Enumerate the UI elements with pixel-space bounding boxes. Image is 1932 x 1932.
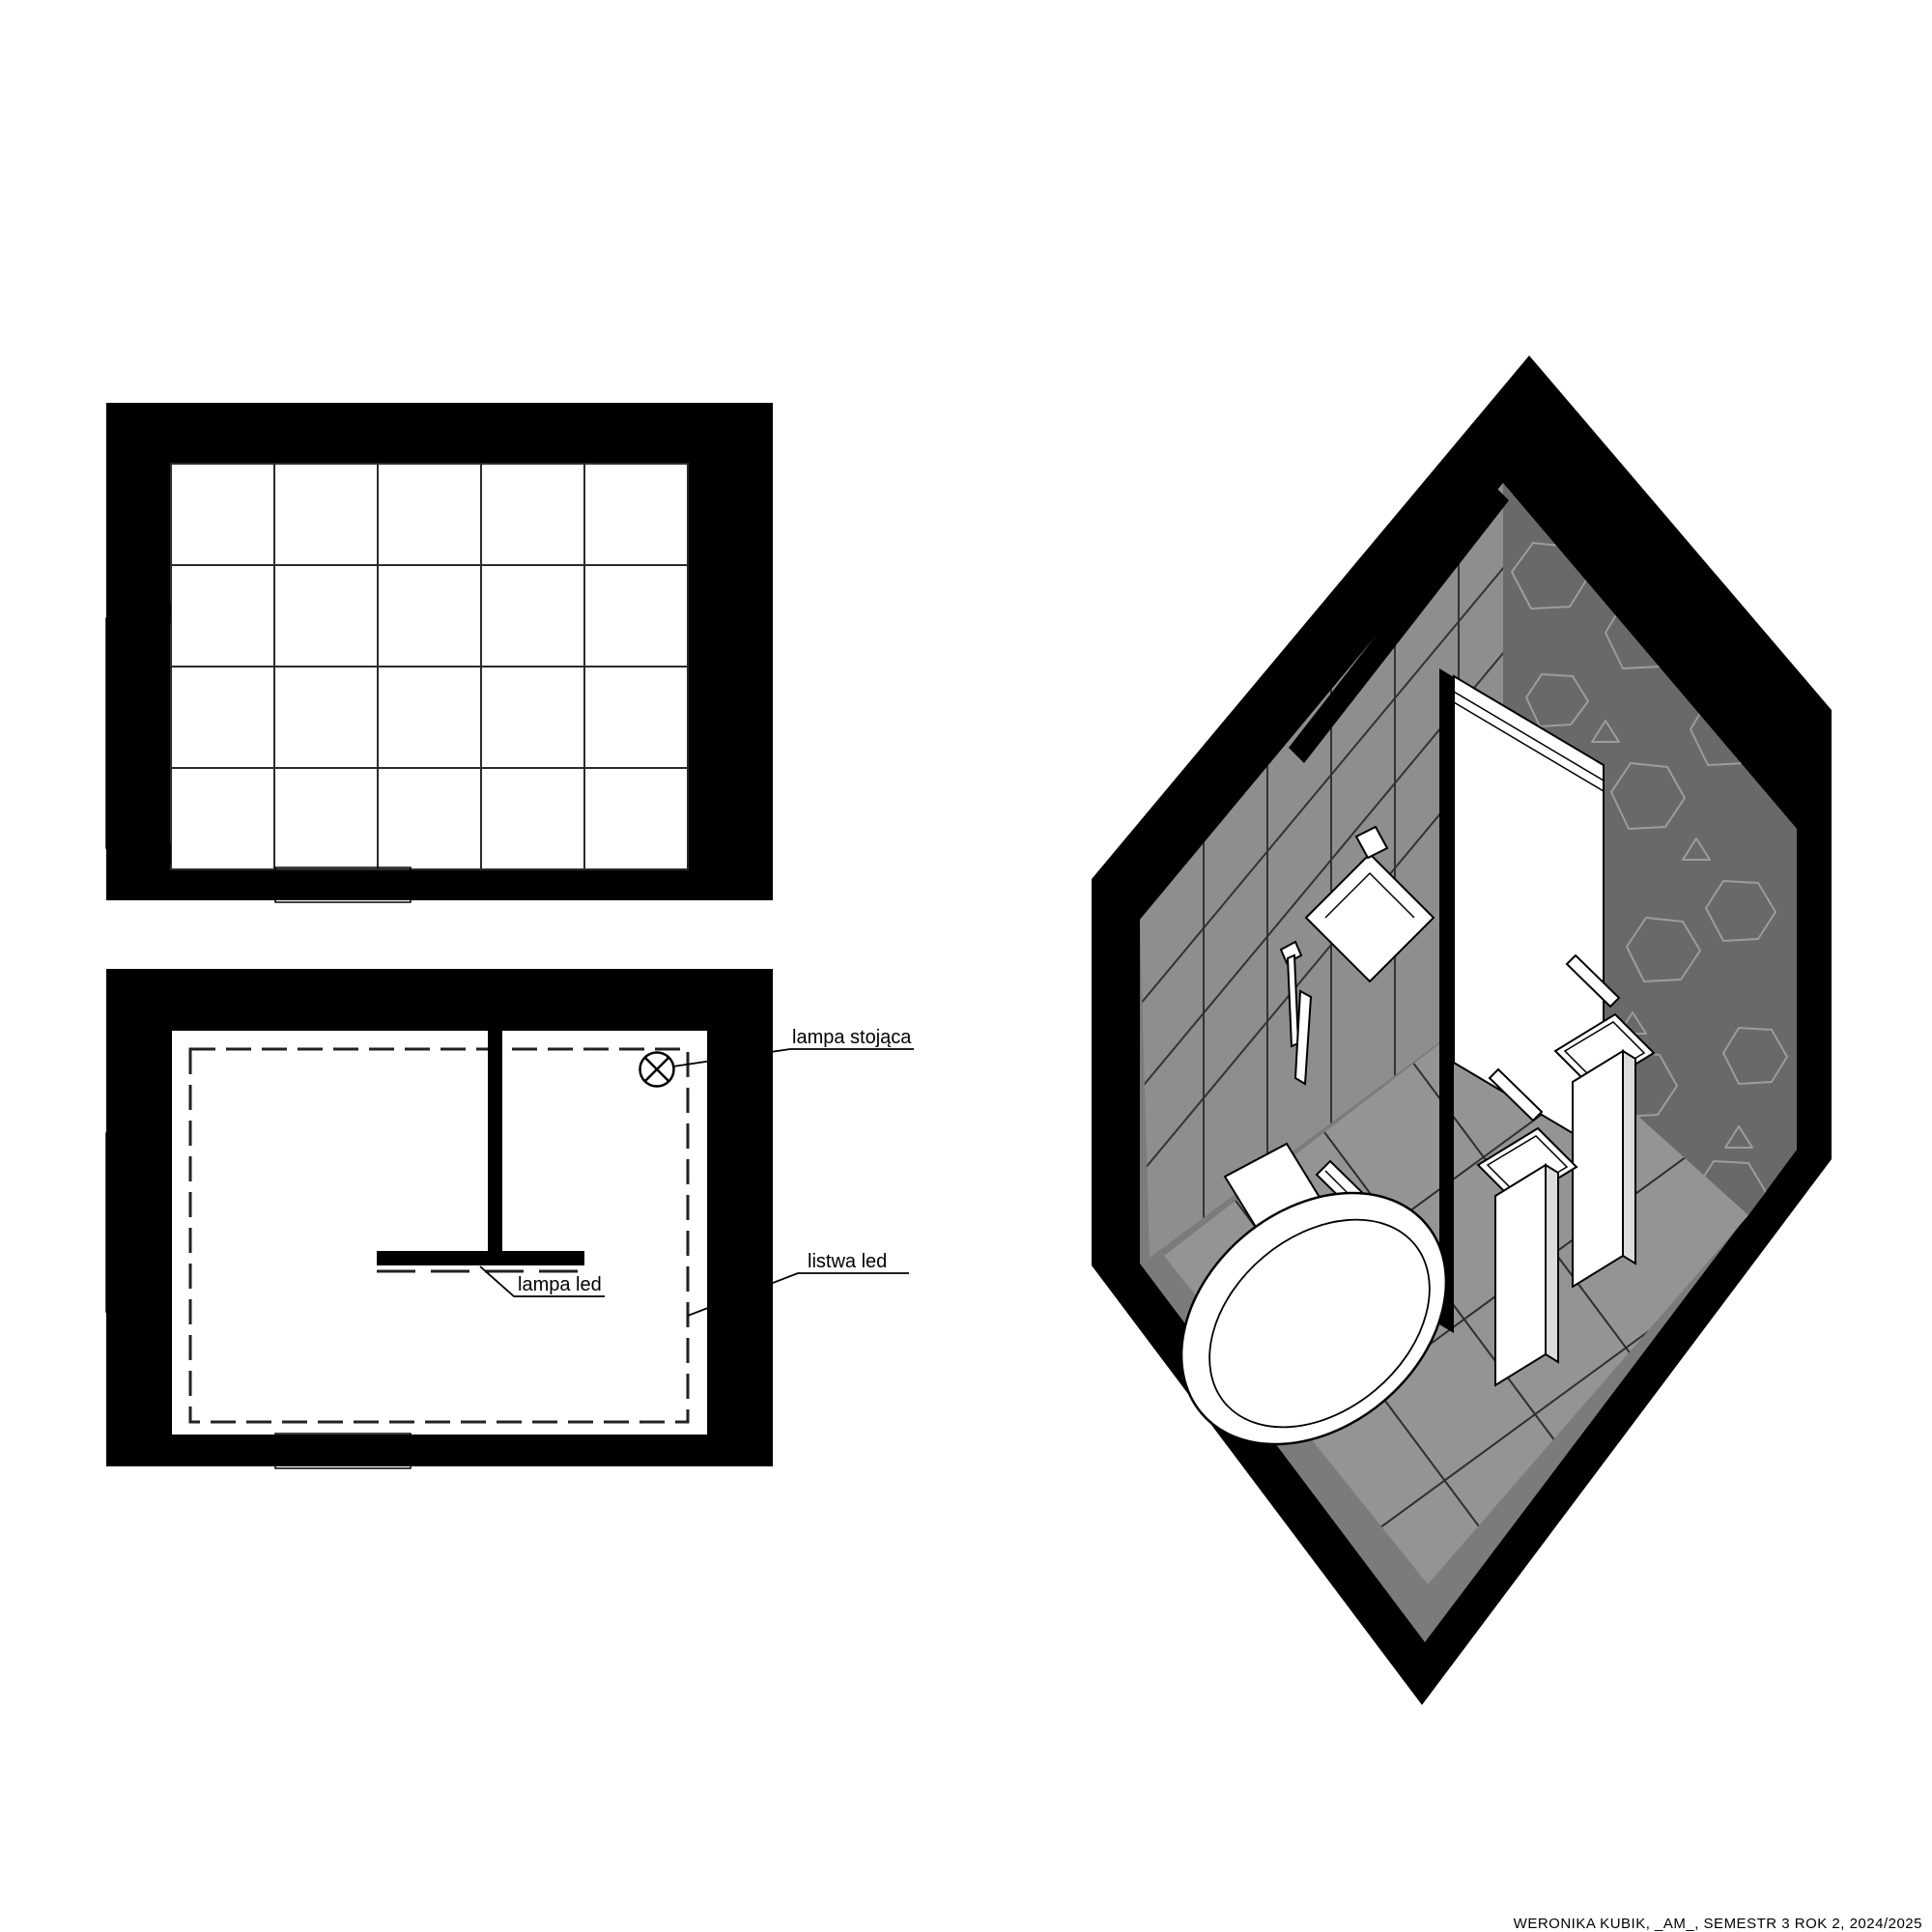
drawing-sheet: lampa stojąca listwa led lampa led [0, 0, 1932, 1932]
led-lamp-bar [377, 1251, 584, 1265]
label-lampa-stojaca: lampa stojąca [792, 1027, 912, 1048]
drawing-canvas: lampa stojąca listwa led lampa led [0, 0, 1932, 1932]
ceiling-plan: lampa stojąca listwa led lampa led [106, 969, 914, 1468]
label-lampa-led: lampa led [518, 1274, 602, 1295]
floor-plan [106, 403, 773, 902]
partition-edge [1439, 668, 1454, 1333]
partition-wall [488, 1030, 502, 1251]
axonometric-view [776, 355, 1832, 1865]
footer-caption: WERONIKA KUBIK, _AM_, SEMESTR 3 ROK 2, 2… [1514, 1916, 1922, 1932]
label-listwa-led: listwa led [808, 1251, 887, 1272]
ceiling-plan-interior [171, 1030, 708, 1435]
